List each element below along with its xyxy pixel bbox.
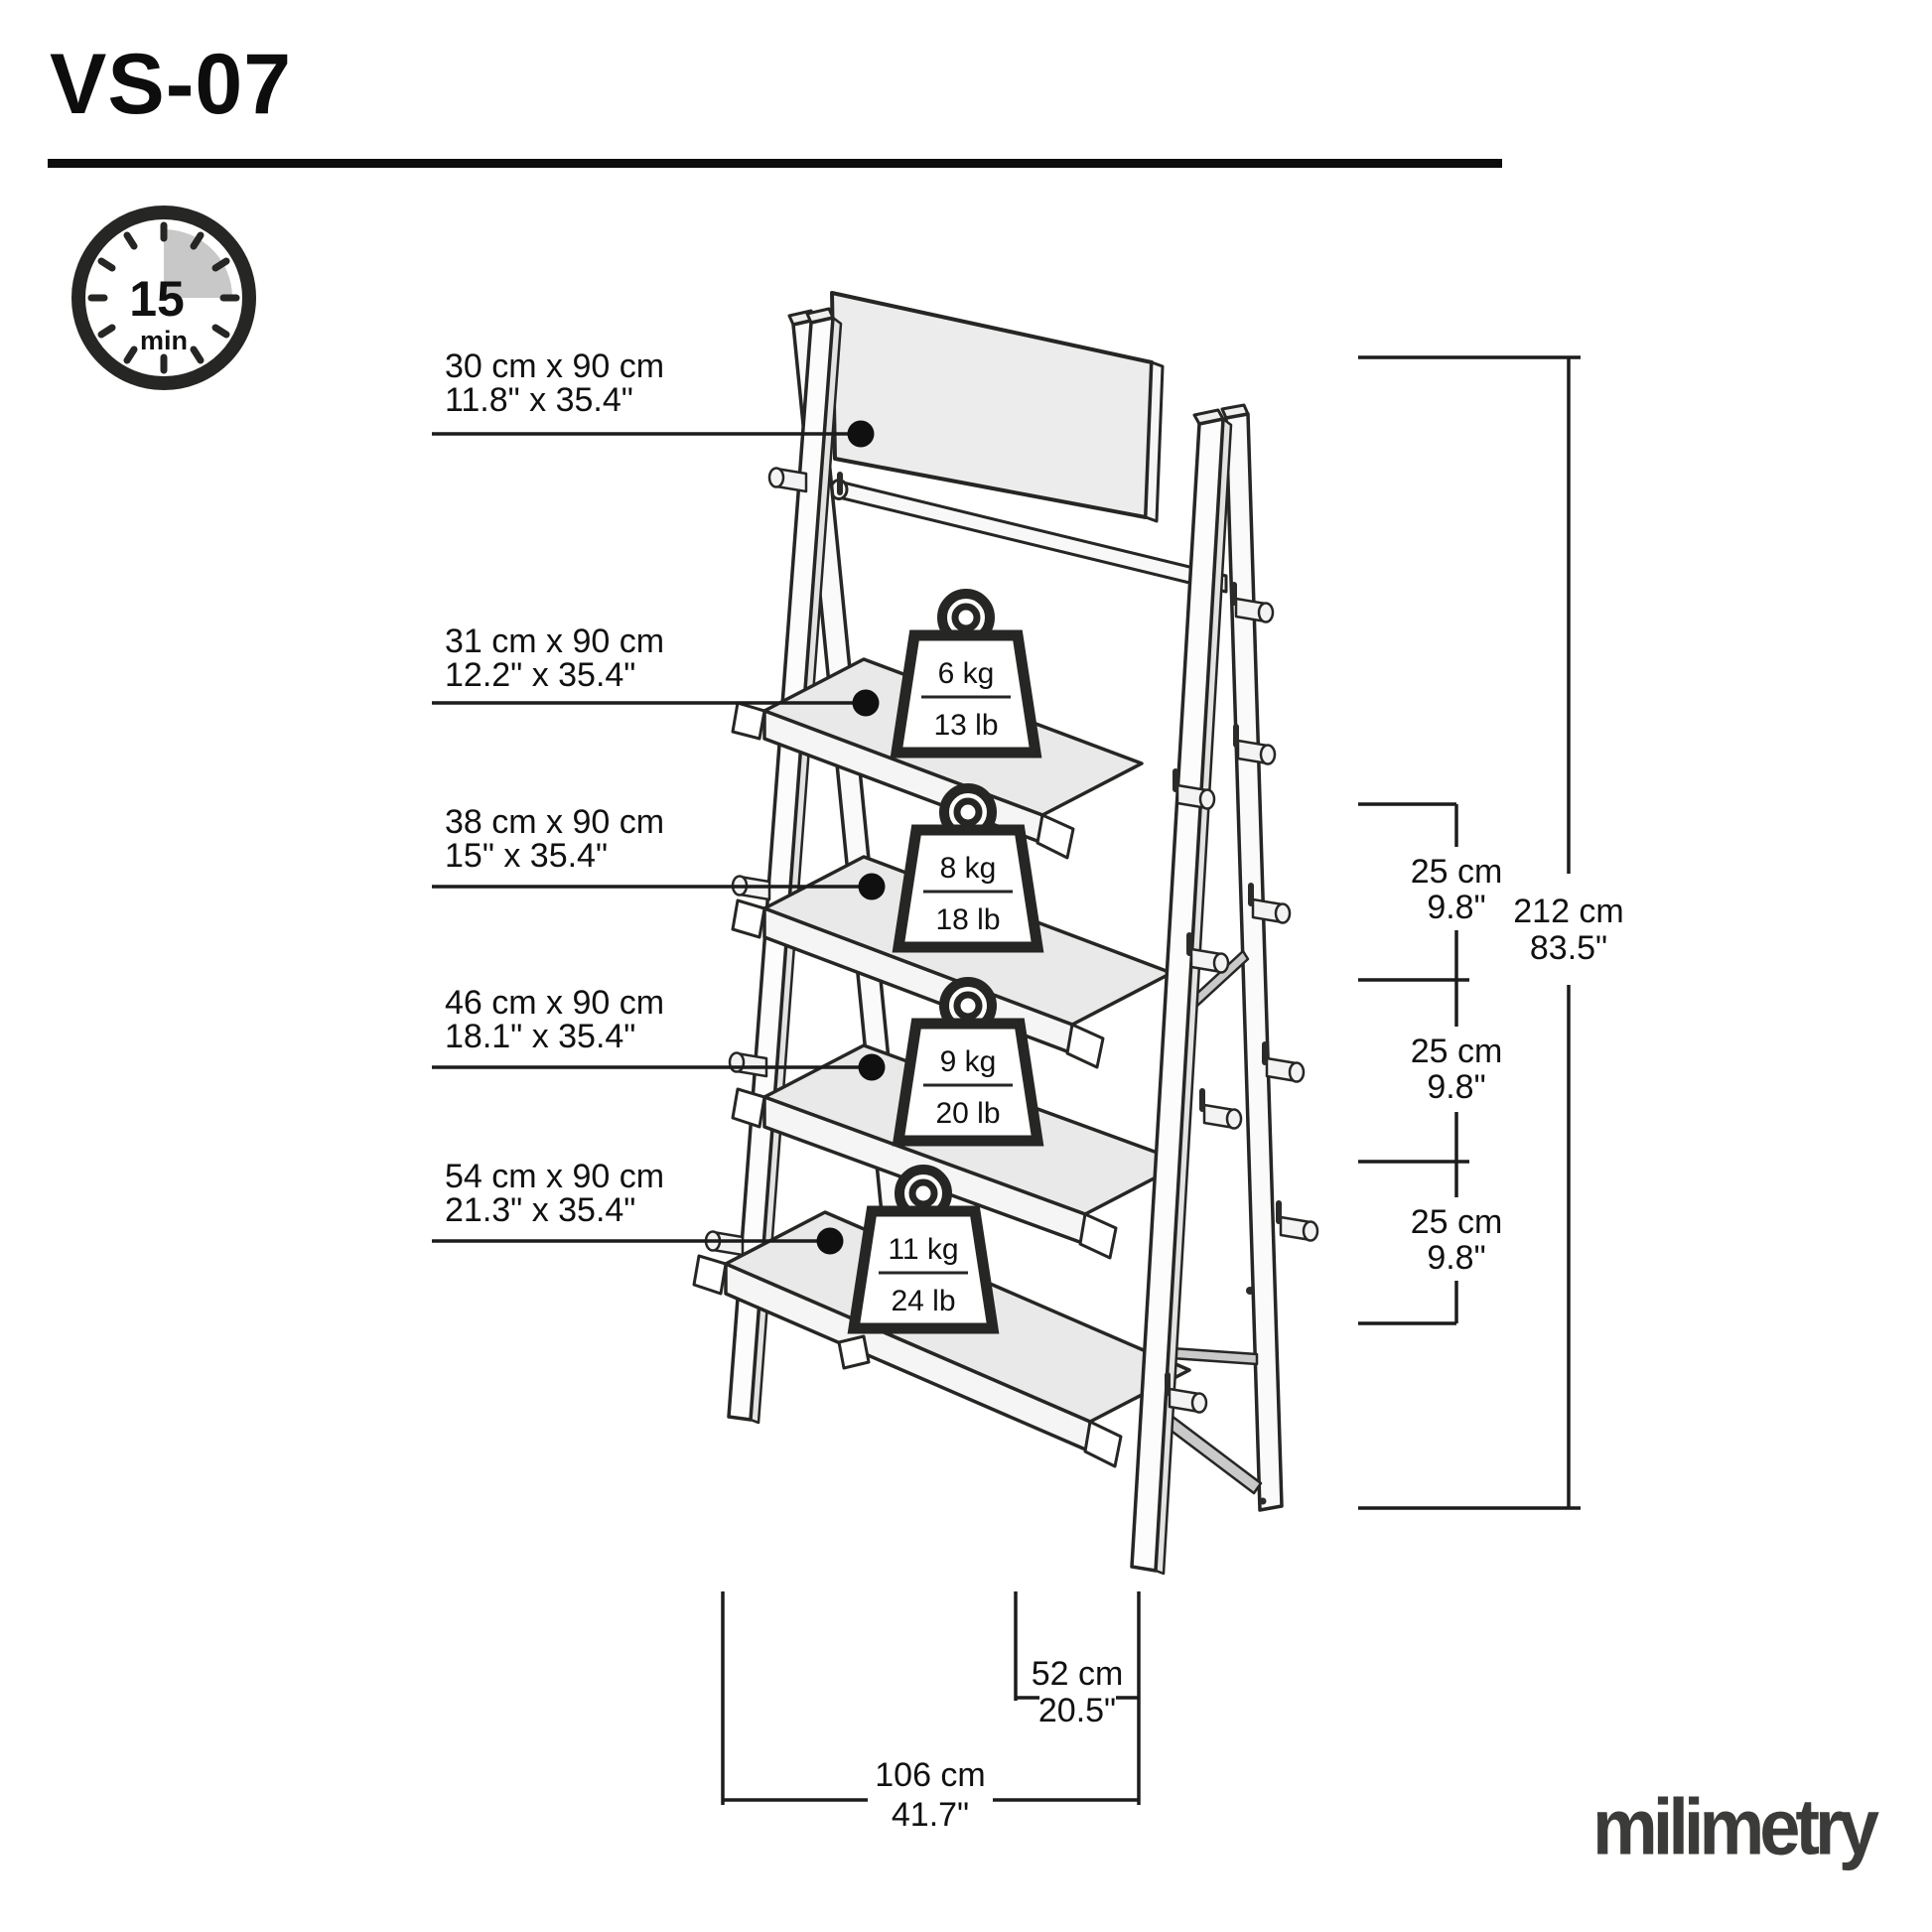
- shelf-size-label-2-imperial: 12.2" x 35.4": [445, 656, 635, 694]
- load-kg-label: 6 kg: [938, 657, 995, 690]
- dim-height-metric: 212 cm: [1513, 893, 1624, 930]
- shelf-size-label-3-imperial: 15" x 35.4": [445, 837, 608, 875]
- shelf-size-label-3-metric: 38 cm x 90 cm: [445, 803, 664, 841]
- brand-logo: milimetry: [1592, 1781, 1874, 1872]
- load-lb-label: 24 lb: [891, 1285, 955, 1317]
- dim-spacing-2-imperial: 9.8": [1427, 1068, 1485, 1106]
- assembly-time-unit: min: [140, 326, 188, 355]
- dim-spacing-3-metric: 25 cm: [1411, 1203, 1503, 1241]
- dimension-width: 106 cm 41.7": [875, 1756, 986, 1834]
- load-kg-label: 8 kg: [940, 852, 997, 885]
- load-badge-1: 6 kg 13 lb: [897, 594, 1035, 753]
- dim-spacing-2-metric: 25 cm: [1411, 1033, 1503, 1070]
- back-panel: [832, 293, 1163, 521]
- leg-back-right: [1222, 405, 1282, 1510]
- dim-height-imperial: 83.5": [1530, 929, 1607, 967]
- shelf-size-label-4-imperial: 18.1" x 35.4": [445, 1018, 635, 1055]
- shelf-4-bracket: [839, 1336, 869, 1368]
- load-lb-label: 13 lb: [933, 709, 998, 742]
- dimension-height: 212 cm 83.5": [1513, 893, 1624, 967]
- assembly-time-value: 15: [129, 271, 185, 327]
- callout-dot-2: [853, 690, 880, 717]
- dim-spacing-3-imperial: 9.8": [1427, 1239, 1485, 1277]
- shelf-size-label-2-metric: 31 cm x 90 cm: [445, 622, 664, 660]
- dim-depth-metric: 52 cm: [1032, 1655, 1124, 1693]
- spec-sheet-page: VS-07 15 min: [0, 0, 1932, 1932]
- diagram-canvas: 15 min: [0, 0, 1932, 1932]
- shelf-size-labels: 30 cm x 90 cm 11.8" x 35.4" 31 cm x 90 c…: [445, 347, 664, 1229]
- shelf-size-label-1-imperial: 11.8" x 35.4": [445, 381, 633, 419]
- callout-dot-4: [859, 1054, 886, 1081]
- dim-width-imperial: 41.7": [892, 1796, 969, 1834]
- dimension-spacing: 25 cm 9.8" 25 cm 9.8" 25 cm 9.8": [1411, 853, 1503, 1277]
- load-kg-label: 9 kg: [940, 1045, 997, 1078]
- dim-depth-imperial: 20.5": [1038, 1692, 1116, 1729]
- shelf-size-label-1-metric: 30 cm x 90 cm: [445, 347, 664, 385]
- shelf-size-label-5-metric: 54 cm x 90 cm: [445, 1158, 664, 1195]
- dim-spacing-1-imperial: 9.8": [1427, 889, 1485, 926]
- load-lb-label: 20 lb: [935, 1097, 1000, 1130]
- dimension-depth: 52 cm 20.5": [1032, 1655, 1124, 1729]
- dim-spacing-1-metric: 25 cm: [1411, 853, 1503, 891]
- load-kg-label: 11 kg: [888, 1233, 958, 1266]
- dim-width-metric: 106 cm: [875, 1756, 986, 1794]
- load-lb-label: 18 lb: [935, 903, 1000, 936]
- callout-dot-1: [848, 421, 875, 448]
- shelf-size-label-4-metric: 46 cm x 90 cm: [445, 984, 664, 1022]
- callout-dot-3: [859, 874, 886, 900]
- shelf-size-label-5-imperial: 21.3" x 35.4": [445, 1191, 635, 1229]
- assembly-time-icon: 15 min: [78, 212, 249, 383]
- callout-dot-5: [817, 1228, 844, 1255]
